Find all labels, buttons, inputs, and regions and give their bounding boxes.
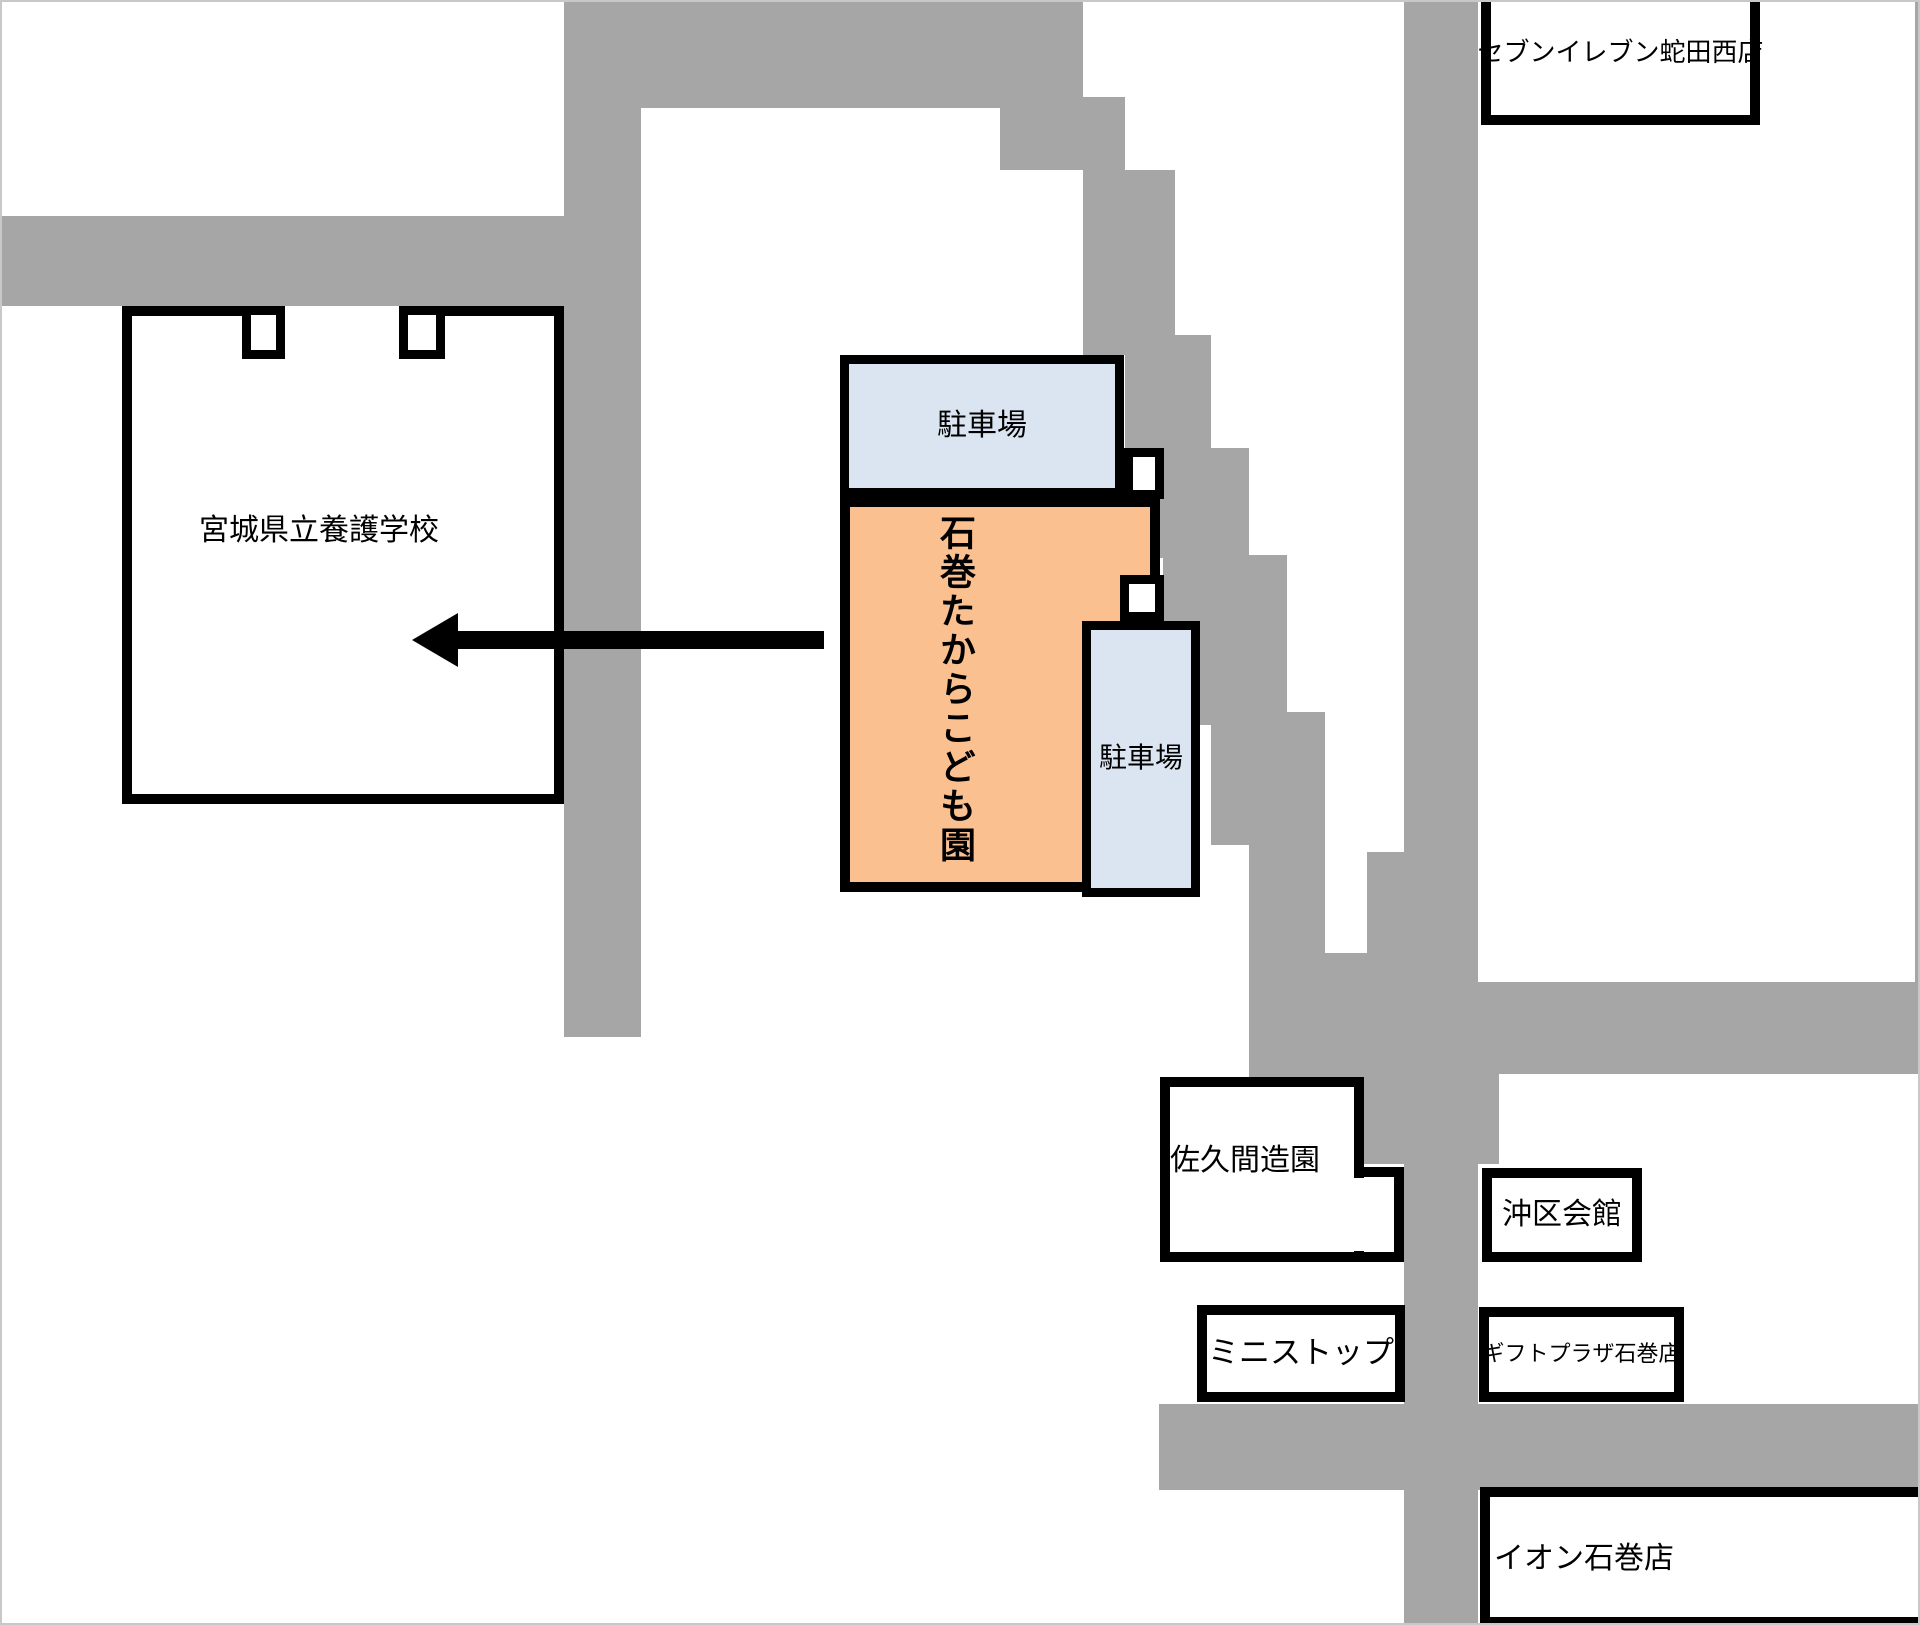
access-map: セブンイレブン蛇田西店 宮城県立養護学校 駐車場 石巻たからこども園 駐車場 佐… bbox=[0, 0, 1920, 1625]
road-right-vertical bbox=[1404, 2, 1478, 1625]
left-arrow-shaft bbox=[454, 631, 824, 649]
school-gate-notch-1 bbox=[242, 306, 285, 359]
road-right-edge-sliver bbox=[1915, 2, 1920, 1074]
road-step-6 bbox=[1249, 555, 1287, 1105]
road-right-horizontal bbox=[1404, 982, 1920, 1074]
sakuma-label: 佐久間造園 bbox=[1170, 1142, 1320, 1180]
road-bottom-horizontal bbox=[1159, 1404, 1920, 1490]
building-oki-hall: 沖区会館 bbox=[1482, 1168, 1642, 1262]
building-school bbox=[122, 306, 564, 804]
parking-top-label: 駐車場 bbox=[937, 407, 1027, 445]
building-ministop: ミニストップ bbox=[1197, 1305, 1405, 1402]
building-gift-plaza: ギフトプラザ石巻店 bbox=[1479, 1307, 1684, 1402]
left-arrow-icon bbox=[412, 613, 458, 667]
small-white-box-2 bbox=[1120, 575, 1164, 621]
sakuma-border-patch bbox=[1353, 1178, 1366, 1251]
ministop-label: ミニストップ bbox=[1208, 1334, 1394, 1373]
school-gate-notch-2 bbox=[399, 306, 445, 359]
road-left-vertical bbox=[564, 2, 641, 1037]
building-seven-eleven: セブンイレブン蛇田西店 bbox=[1481, 0, 1760, 125]
seven-eleven-label: セブンイレブン蛇田西店 bbox=[1478, 37, 1764, 70]
aeon-label: イオン石巻店 bbox=[1494, 1540, 1674, 1578]
road-step-5 bbox=[1211, 448, 1249, 845]
parking-side-label: 駐車場 bbox=[1082, 740, 1200, 775]
small-white-box-1 bbox=[1124, 448, 1164, 499]
road-step-2 bbox=[1083, 97, 1125, 355]
oki-hall-label: 沖区会館 bbox=[1502, 1196, 1622, 1234]
road-step-1 bbox=[1000, 108, 1083, 170]
parking-top: 駐車場 bbox=[840, 355, 1124, 497]
school-label: 宮城県立養護学校 bbox=[169, 512, 469, 550]
gift-plaza-label: ギフトプラザ石巻店 bbox=[1483, 1341, 1681, 1369]
facility-label: 石巻たからこども園 bbox=[932, 514, 977, 889]
road-left-horizontal bbox=[2, 216, 565, 306]
road-top-band bbox=[564, 2, 1083, 108]
